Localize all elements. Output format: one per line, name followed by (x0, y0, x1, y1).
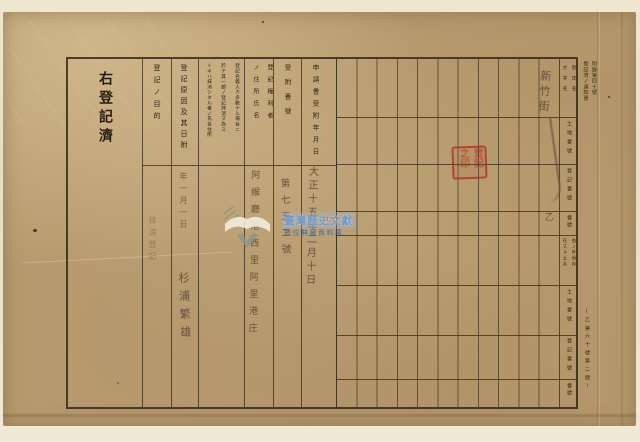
header-cause-date: 登記原因及其日附 (179, 64, 189, 152)
margin-form-title: 登記濟ノ通知書 (581, 61, 590, 101)
column-rule (142, 59, 143, 407)
seal-text: 登記 之印 (455, 148, 484, 178)
ink-speck (33, 229, 37, 232)
column-rule (559, 59, 560, 407)
handwriting-signature: 杉浦繁雄 (175, 272, 194, 345)
header-note-line: トキハ抹消シタル者ノ氏名住所 (201, 63, 215, 137)
column-rule (198, 59, 199, 407)
handwriting-cause-date: 年一月一日 (178, 172, 189, 232)
header-rights-holder-line: 登記権利者 (262, 64, 276, 124)
header-application-date: 申請書受附年月日 (309, 64, 319, 160)
paper-crease (3, 414, 636, 417)
grid-row-rule (336, 335, 576, 336)
red-seal-stamp: 登記 之印 (451, 145, 487, 179)
handwriting-number-mark: 乙 (543, 212, 556, 221)
margin-form-id: 附錄第四十號 登記濟ノ通知書 (581, 61, 598, 101)
ink-speck (608, 96, 610, 98)
header-rights-holder-line: ノ住所氏名 (248, 64, 262, 124)
grid-row-rule (336, 285, 576, 286)
grid-row-rule (336, 379, 576, 380)
grid-row-rule (336, 211, 576, 212)
margin-bottom-note: (乙第六十號第二面) (584, 308, 591, 392)
handwriting-purpose: 抹消登記 (147, 216, 158, 264)
grid-header-place-1: 街庄名 大字名 (561, 65, 579, 97)
header-receipt-number: 受附番號 (281, 64, 291, 122)
scanned-document-page: { "page": { "left_stamp": "右登記濟", "margi… (0, 0, 640, 442)
grid-header-land-number-1: 土地番號 (565, 121, 572, 157)
grid-header-place-2: 右ノ外尚存 在スル土名 (561, 238, 579, 268)
handwriting-receipt-number: 第七五二號 (276, 178, 291, 261)
grid-header-number-1: 番號 (565, 215, 572, 229)
header-note: 登記名義人カ多數ナル場合ニ 於テ其一部ノ登記抹消ヲ為ス トキハ抹消シタル者ノ氏名… (201, 63, 243, 137)
grid-header-land-number-2: 土地番號 (565, 289, 572, 325)
grid-header-line: 在スル土名 (561, 238, 570, 268)
header-note-line: 於テ其一部ノ登記抹消ヲ為ス (215, 63, 229, 137)
header-rights-holder: 登記権利者 ノ住所氏名 (248, 64, 276, 124)
grid-header-line: 街庄名 (570, 65, 579, 97)
seal-text-line: 登記 (469, 148, 484, 177)
grid-header-registration-number-2: 登記番號 (565, 338, 572, 374)
grid-header-line: 右ノ外尚存 (570, 238, 579, 268)
column-rule (171, 59, 172, 407)
grid-header-line: 大字名 (561, 65, 570, 97)
grid-header-registration-number-1: 登記番號 (565, 168, 572, 204)
margin-form-number: 附錄第四十號 (590, 61, 599, 101)
grid-header-number-2: 番號 (565, 383, 572, 397)
stamp-registration-complete: 右登記濟 (94, 71, 114, 147)
handwriting-place-annotation: 新竹街 (535, 70, 553, 116)
paper-fold-line (621, 12, 623, 426)
registration-form-table: 右登記濟 登記ノ目的 登記原因及其日附 登記名義人カ多數ナル場合ニ 於テ其一部ノ… (66, 57, 578, 409)
header-purpose: 登記ノ目的 (152, 64, 162, 124)
handwriting-application-date: 大正十五年二月十日 (301, 166, 319, 288)
grid-row-rule (336, 235, 576, 236)
seal-text-line: 之印 (455, 148, 470, 177)
grid-columns (336, 59, 559, 407)
header-note-line: 登記名義人カ多數ナル場合ニ (229, 63, 243, 137)
column-rule (244, 59, 245, 407)
ink-speck (262, 21, 264, 23)
